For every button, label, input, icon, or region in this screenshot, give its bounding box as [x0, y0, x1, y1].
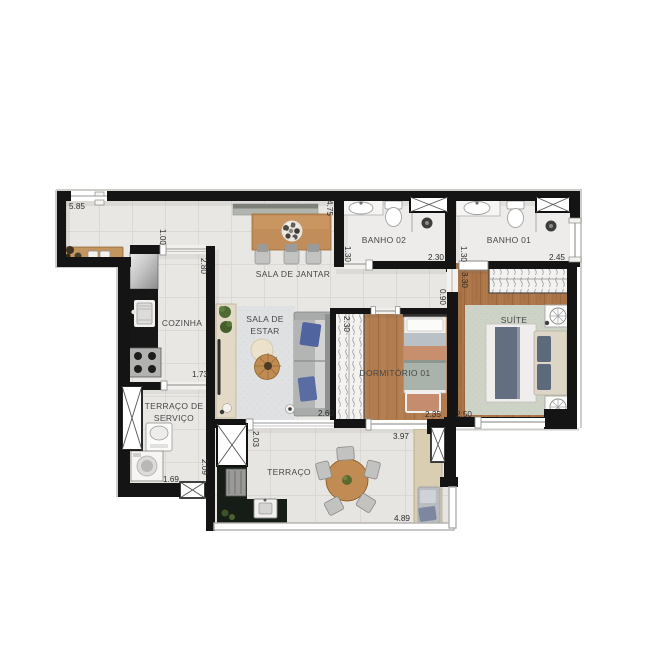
svg-text:1.69: 1.69 — [163, 475, 179, 484]
svg-text:2.45: 2.45 — [549, 253, 565, 262]
svg-text:1.30: 1.30 — [343, 246, 352, 262]
svg-text:2.60: 2.60 — [318, 409, 334, 418]
svg-text:ESTAR: ESTAR — [250, 326, 279, 336]
svg-text:TERRAÇO DE: TERRAÇO DE — [145, 401, 204, 411]
svg-text:4.89: 4.89 — [394, 514, 410, 523]
svg-text:1.73: 1.73 — [192, 370, 208, 379]
svg-text:2.03: 2.03 — [251, 431, 260, 447]
svg-text:2.30: 2.30 — [342, 316, 351, 332]
svg-text:2.80: 2.80 — [199, 258, 208, 274]
svg-text:1.30: 1.30 — [459, 246, 468, 262]
svg-text:BANHO 02: BANHO 02 — [362, 235, 406, 245]
svg-text:TERRAÇO: TERRAÇO — [267, 467, 311, 477]
svg-text:COZINHA: COZINHA — [162, 318, 202, 328]
svg-text:4.75: 4.75 — [325, 200, 334, 216]
svg-text:0.90: 0.90 — [438, 289, 447, 305]
svg-text:SUÍTE: SUÍTE — [501, 315, 528, 325]
svg-text:SALA DE: SALA DE — [246, 314, 284, 324]
svg-text:SERVIÇO: SERVIÇO — [154, 413, 194, 423]
svg-text:SALA DE JANTAR: SALA DE JANTAR — [256, 269, 330, 279]
svg-text:3.97: 3.97 — [393, 432, 409, 441]
svg-text:2.30: 2.30 — [428, 253, 444, 262]
svg-text:5.85: 5.85 — [69, 202, 85, 211]
svg-text:2.50: 2.50 — [456, 410, 472, 419]
svg-text:2.09: 2.09 — [200, 459, 209, 475]
svg-text:DORMITÓRIO 01: DORMITÓRIO 01 — [360, 368, 431, 378]
svg-text:1.00: 1.00 — [158, 229, 167, 245]
svg-text:3.30: 3.30 — [460, 272, 469, 288]
svg-text:2.35: 2.35 — [425, 410, 441, 419]
svg-text:BANHO 01: BANHO 01 — [487, 235, 531, 245]
